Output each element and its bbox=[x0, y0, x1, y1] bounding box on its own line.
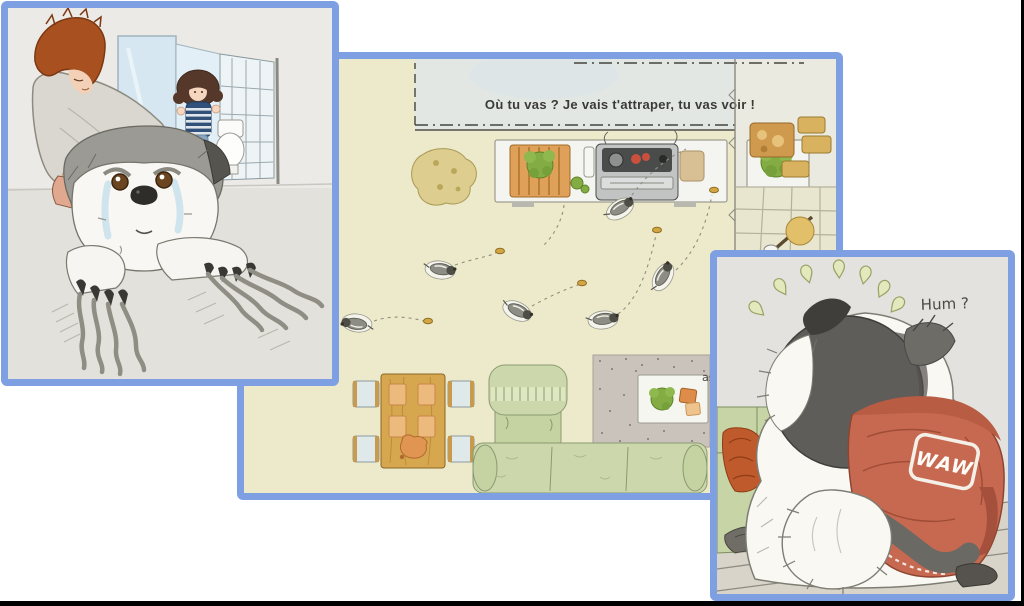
photo-collage: Où tu vas ? Je vais t'attraper, tu vas v… bbox=[0, 0, 1024, 606]
dog-nose bbox=[131, 186, 158, 206]
scan-edge-bottom bbox=[0, 601, 1024, 606]
rug bbox=[593, 355, 710, 447]
panel-bathroom-scene bbox=[1, 1, 339, 386]
kitchen-counter bbox=[495, 130, 727, 207]
dog-hoodie-illustration: WAW Hum ? bbox=[717, 257, 1008, 594]
panel-dog-hoodie-scene: WAW Hum ? bbox=[710, 250, 1015, 601]
tear-streak bbox=[105, 184, 108, 236]
couch bbox=[473, 443, 707, 493]
food-spill bbox=[400, 435, 427, 458]
speech-text: Où tu vas ? Je vais t'attraper, tu vas v… bbox=[485, 97, 755, 112]
bread-board bbox=[750, 123, 794, 157]
paper-bag bbox=[680, 151, 704, 181]
hum-text: Hum ? bbox=[920, 294, 969, 314]
ball bbox=[786, 217, 814, 245]
tiled-floor bbox=[736, 187, 836, 257]
bathroom-illustration bbox=[8, 8, 332, 379]
